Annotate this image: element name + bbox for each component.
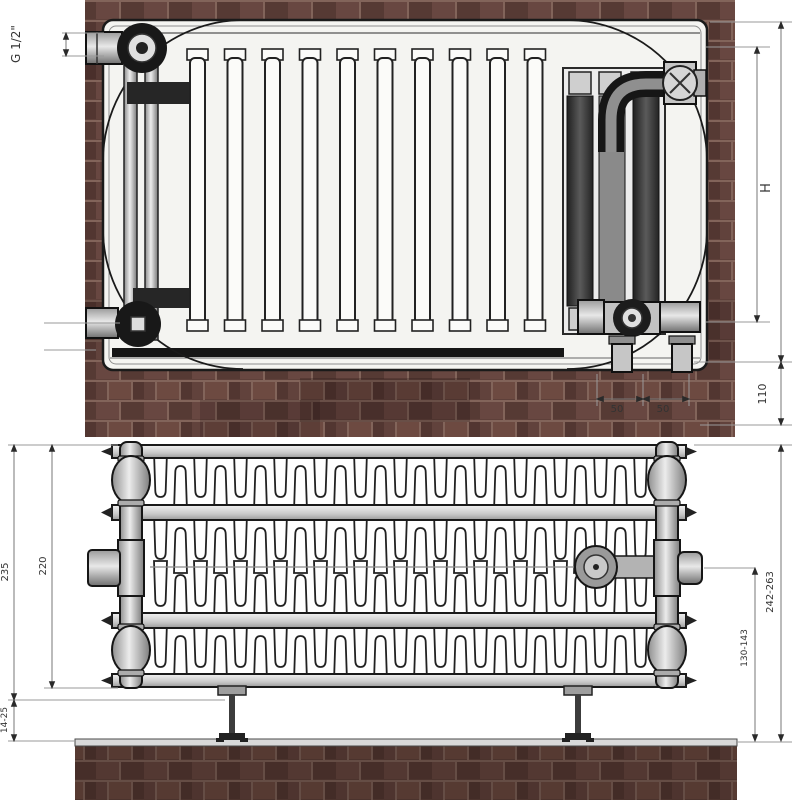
thread-size-label: G 1/2": [9, 25, 23, 63]
radiator-front-panel: [86, 20, 707, 372]
weld-block-top: [127, 82, 191, 104]
right-stub-pipe: [678, 552, 702, 584]
panel-bar: [101, 445, 697, 458]
depth-outer-label: 235: [0, 562, 11, 581]
drawing-svg: G 1/2" H 110: [0, 0, 800, 800]
wall-distance-label: 242-263: [765, 571, 776, 613]
floor-slab: [75, 739, 737, 800]
convector-fin-rows: [150, 452, 648, 681]
dimension-depth-outer: 235: [0, 445, 14, 700]
bottom-clearance-label: 110: [756, 384, 769, 405]
valve-link: [612, 556, 656, 578]
panel-bottom-channel: [112, 348, 564, 357]
panel-bar: [101, 613, 697, 628]
floor-bracket: [216, 686, 248, 742]
depth-inner-label: 220: [38, 556, 49, 575]
end-column-left: [88, 442, 150, 688]
floor-gap-label: 14-25: [0, 707, 10, 733]
panel-bar: [101, 674, 697, 687]
dimension-floor-gap: 14-25: [0, 700, 14, 741]
front-view: G 1/2" H 110: [9, 0, 792, 437]
dimension-pipe-axis: 130-143: [704, 568, 755, 741]
left-stub-pipe: [88, 550, 120, 586]
pipe-spacing-b-label: 50: [657, 404, 670, 415]
height-label: H: [759, 183, 774, 193]
pipe-spacing-a-label: 50: [611, 404, 624, 415]
supply-pipe: [612, 344, 632, 372]
panel-bar: [101, 505, 697, 520]
dimension-depth-inner: 220: [38, 445, 52, 688]
pipe-axis-label: 130-143: [740, 629, 750, 667]
floor-top-edge: [75, 739, 737, 746]
floor-bracket: [562, 686, 594, 742]
radiator-technical-drawing: G 1/2" H 110: [0, 0, 800, 800]
return-pipe: [672, 344, 692, 372]
plan-view: 220 235 14-25 242-263 130-143: [0, 442, 792, 800]
dimension-wall-distance-total: 242-263: [765, 445, 781, 741]
